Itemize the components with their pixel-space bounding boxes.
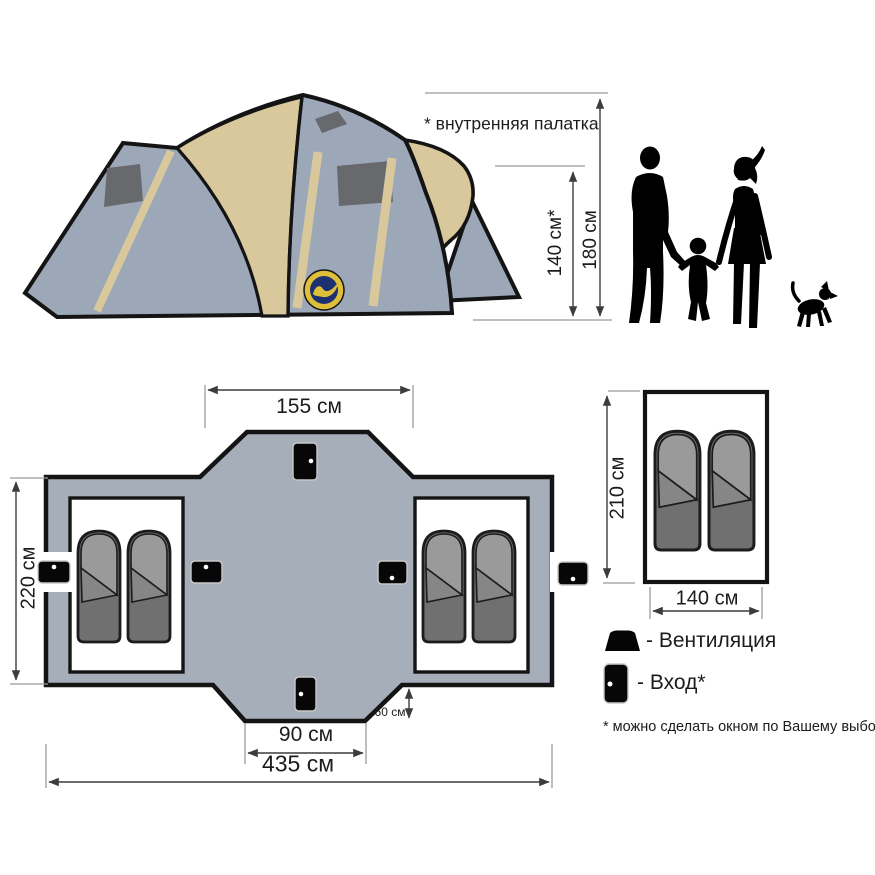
entrance-door-top bbox=[293, 443, 317, 480]
dimension-label-435: 435 см bbox=[262, 751, 334, 778]
footnote: * можно сделать окном по Вашему выбору bbox=[603, 719, 875, 735]
dimension-label-210: 210 см bbox=[607, 457, 630, 520]
dimension-label-180: 180 см bbox=[580, 210, 602, 270]
legend-icons bbox=[604, 631, 640, 704]
inner-tent-note: * внутренняя палатка bbox=[424, 114, 599, 135]
dimension-label-60: 60 см bbox=[375, 705, 406, 719]
sleeping-bag bbox=[128, 531, 170, 642]
dog-silhouette bbox=[793, 281, 838, 327]
entrance-door-center-left bbox=[191, 561, 222, 583]
entrance-door-left-edge bbox=[38, 561, 70, 583]
entrance-door-right-edge bbox=[558, 562, 588, 585]
sleeping-bag bbox=[473, 531, 515, 642]
tent-window-left bbox=[104, 164, 143, 207]
sleeping-bag bbox=[78, 531, 120, 642]
entrance-door-center-right bbox=[378, 561, 407, 584]
entrance-icon bbox=[604, 664, 628, 703]
family-silhouette bbox=[629, 146, 838, 328]
dimension-label-140: 140 см* bbox=[545, 210, 567, 277]
dimension-label-140-room: 140 см bbox=[676, 588, 739, 611]
dimension-label-155: 155 см bbox=[276, 395, 342, 419]
dimension-label-220: 220 см bbox=[18, 547, 41, 610]
brand-badge bbox=[304, 270, 344, 310]
sleeping-bag bbox=[655, 431, 700, 550]
dimension-label-90: 90 см bbox=[279, 723, 333, 747]
sleeping-bag bbox=[709, 431, 754, 550]
legend-entrance-label: - Вход* bbox=[637, 671, 706, 695]
entrance-door-bottom bbox=[295, 677, 316, 711]
sleeping-bag bbox=[423, 531, 465, 642]
ventilation-icon bbox=[605, 631, 640, 652]
legend-ventilation-label: - Вентиляция bbox=[646, 629, 776, 653]
tent-diagram-page: * внутренняя палатка 140 см* 180 см 155 … bbox=[0, 0, 875, 875]
